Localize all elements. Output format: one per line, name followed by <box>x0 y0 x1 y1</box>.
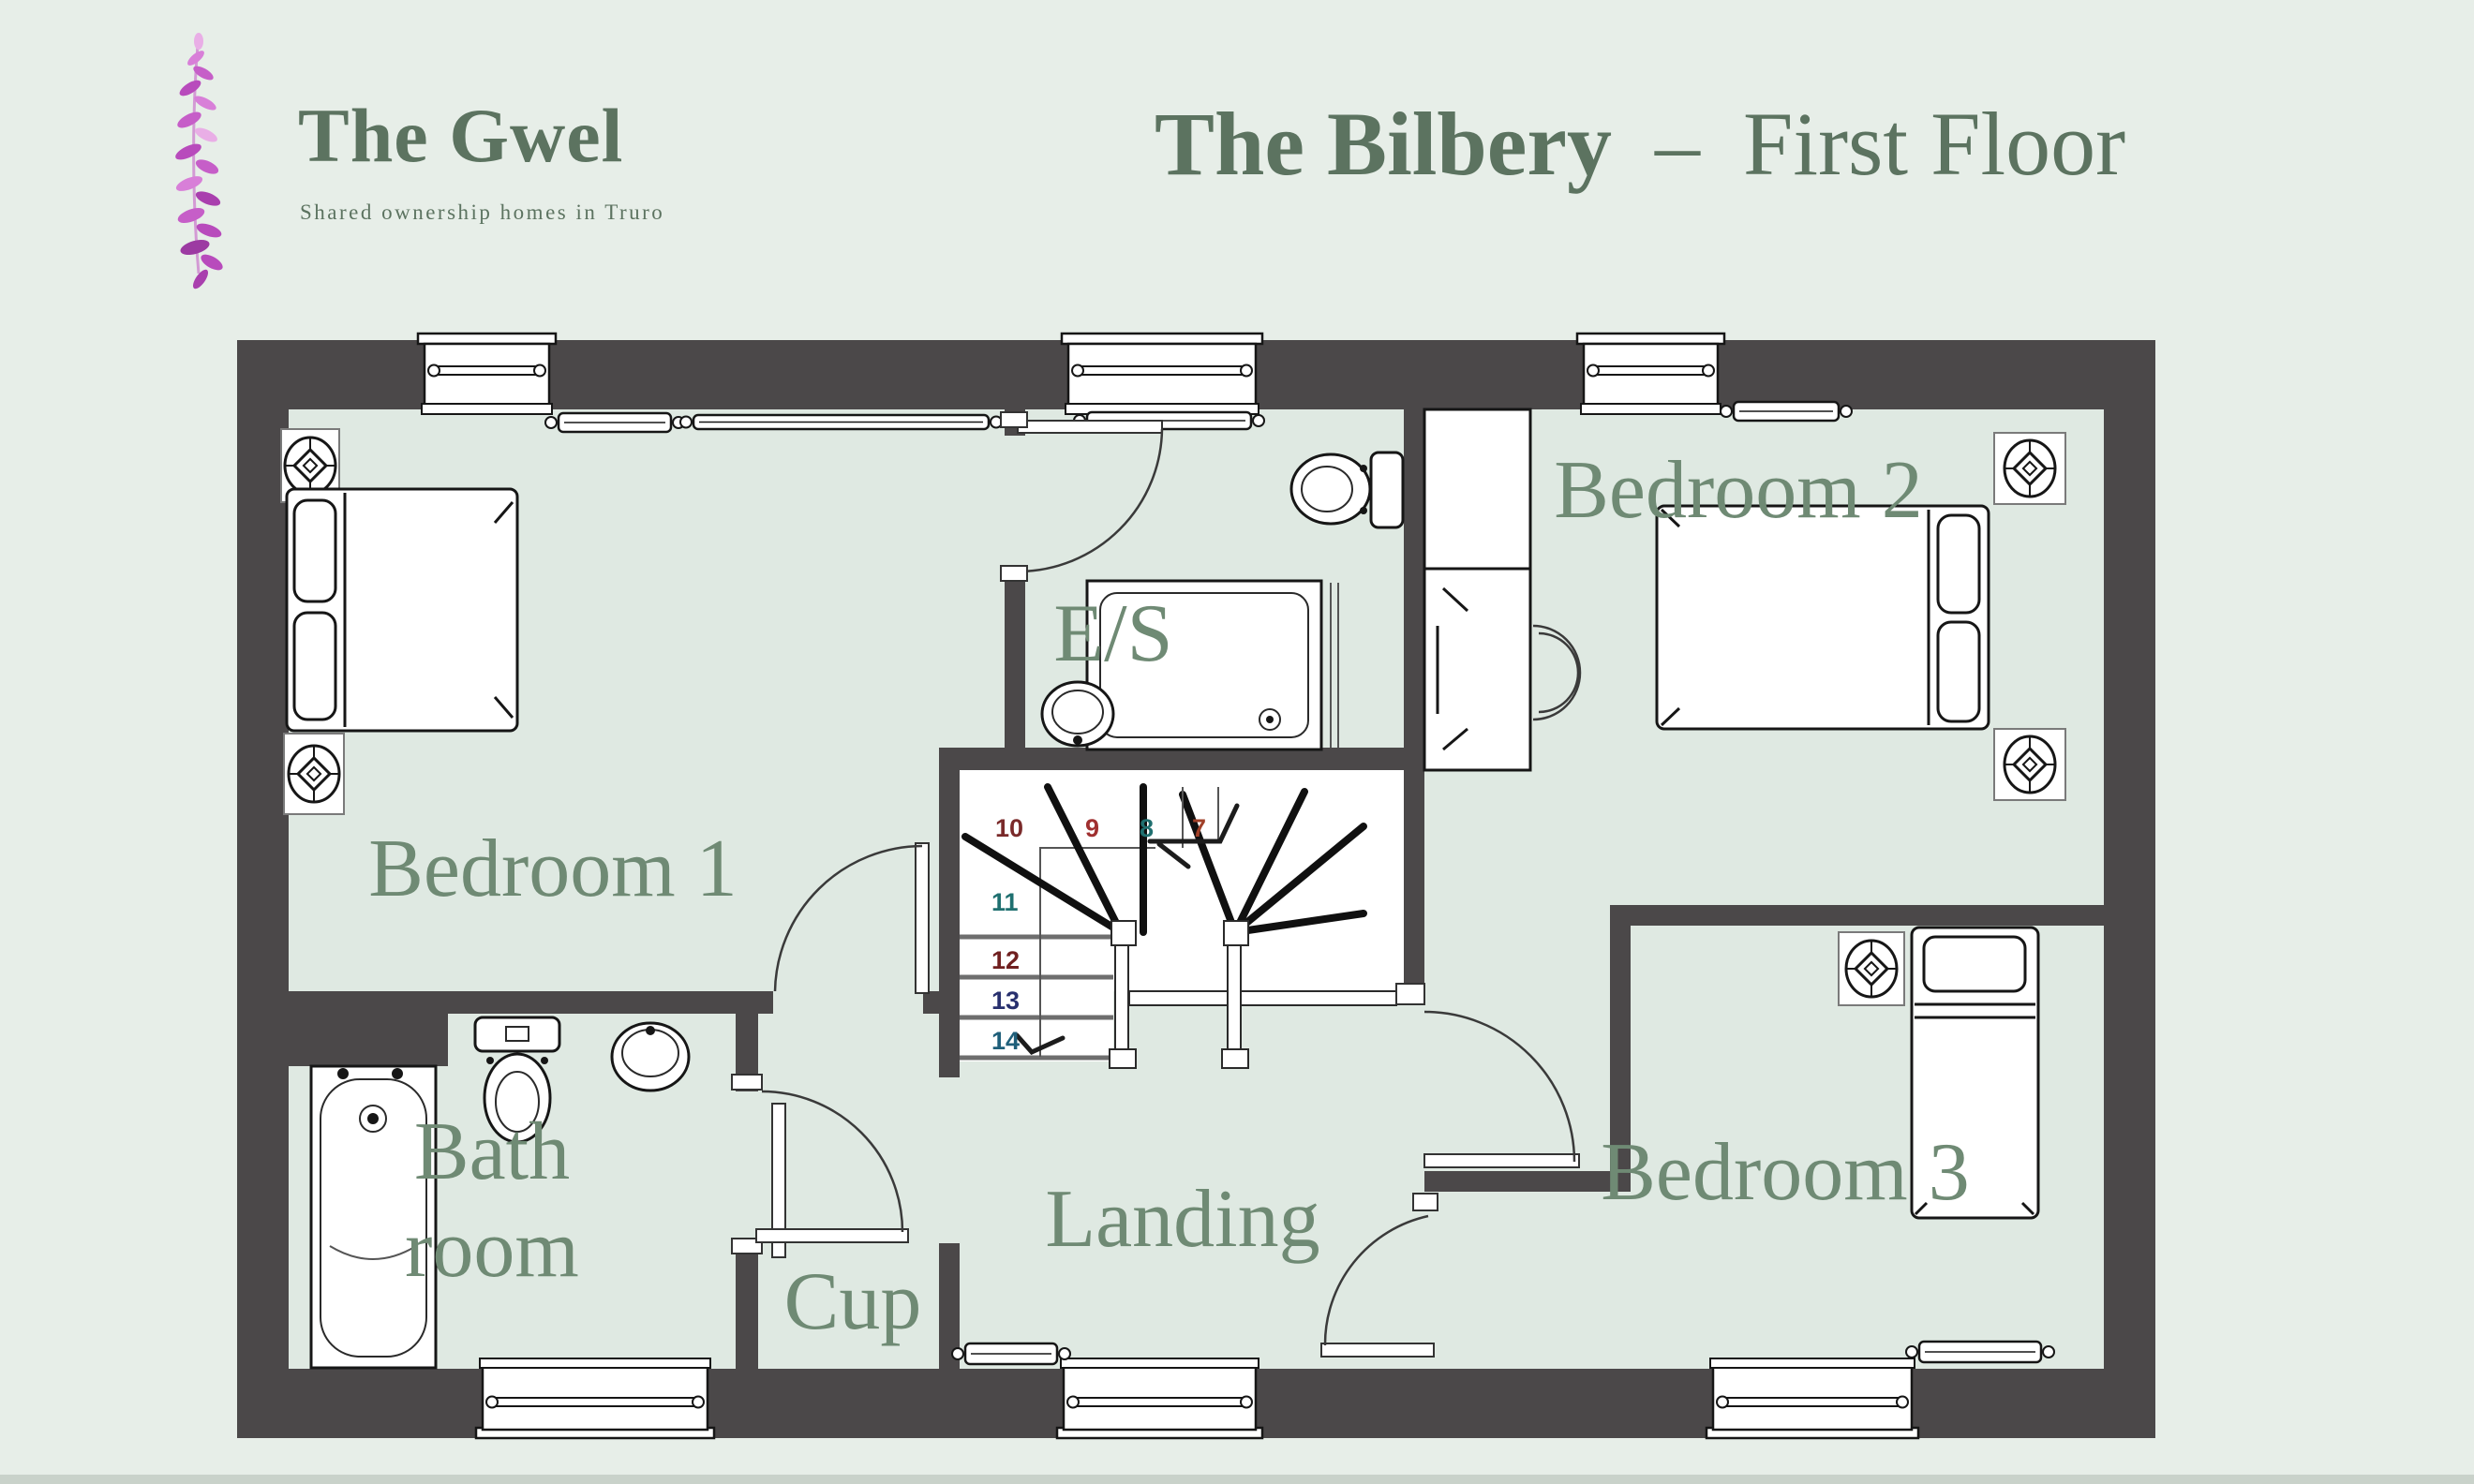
stair-step-10: 10 <box>995 814 1023 842</box>
room-label-bathroom-line2: room <box>405 1204 579 1295</box>
bedroom-1-door <box>916 843 929 993</box>
room-label-cupboard: Cup <box>784 1256 922 1347</box>
window <box>1577 334 1724 414</box>
wardrobe <box>1424 409 1530 569</box>
brand-title: The Gwel <box>298 93 623 178</box>
header: The Gwel Shared ownership homes in Truro… <box>173 33 2125 291</box>
pillow <box>1938 515 1979 613</box>
pillow <box>1938 622 1979 721</box>
stair-step-8: 8 <box>1140 814 1154 842</box>
bedroom-2-door <box>1424 1154 1579 1167</box>
bedroom-1-furniture <box>287 489 517 731</box>
bedside-table <box>1839 932 1904 1005</box>
window <box>1706 1358 1918 1438</box>
pillow <box>294 613 335 720</box>
ensuite-door <box>1018 421 1162 433</box>
bedside-table <box>1994 729 2065 800</box>
pillow <box>294 500 335 601</box>
stair-step-11: 11 <box>991 888 1019 916</box>
page-title-separator: – <box>1654 94 1701 194</box>
stair-step-14: 14 <box>991 1027 1020 1055</box>
lamp-icon <box>289 746 339 802</box>
lamp-icon <box>2005 736 2055 793</box>
window <box>1062 334 1262 414</box>
room-label-landing: Landing <box>1045 1174 1319 1265</box>
page-title: The Bilbery – First Floor <box>1155 94 2125 194</box>
banister-rail <box>1129 991 1396 1005</box>
bedside-table <box>1994 433 2065 504</box>
room-label-ensuite: E/S <box>1053 588 1172 679</box>
stair-step-9: 9 <box>1085 814 1099 842</box>
stair-step-12: 12 <box>991 946 1020 974</box>
toilet-icon <box>1291 453 1403 527</box>
radiator <box>952 1343 1070 1364</box>
basin-icon <box>1042 682 1113 746</box>
window <box>418 334 556 414</box>
pillow <box>1924 937 2025 991</box>
lamp-icon <box>2005 440 2055 497</box>
room-label-bedroom-2: Bedroom 2 <box>1554 445 1923 536</box>
stair-step-13: 13 <box>991 987 1020 1015</box>
stair-step-7: 7 <box>1192 814 1206 842</box>
room-label-bedroom-3: Bedroom 3 <box>1601 1127 1970 1218</box>
lamp-icon <box>1846 941 1897 997</box>
desk <box>1424 569 1530 770</box>
radiator <box>1906 1342 2054 1362</box>
brand-tagline: Shared ownership homes in Truro <box>300 200 664 224</box>
page-title-floor: First Floor <box>1743 94 2125 194</box>
page-bottom-edge <box>0 1475 2474 1484</box>
room-label-bathroom-line1: Bath <box>414 1106 570 1197</box>
radiator <box>545 413 684 432</box>
window <box>476 1358 714 1438</box>
radiator <box>1721 402 1852 421</box>
basin-icon <box>612 1023 689 1091</box>
cupboard-partition <box>756 1229 908 1242</box>
window <box>1057 1358 1262 1438</box>
floorplan: 7 8 9 10 11 12 13 14 <box>237 334 2155 1438</box>
bedside-table <box>284 734 344 814</box>
bedroom-3-door <box>1321 1343 1434 1357</box>
radiator <box>680 415 1002 429</box>
floorplan-page: The Gwel Shared ownership homes in Truro… <box>0 0 2474 1484</box>
room-label-bedroom-1: Bedroom 1 <box>368 824 738 914</box>
lamp-icon <box>285 438 335 494</box>
page-title-name: The Bilbery <box>1155 94 1612 194</box>
lavender-sprig-logo-icon <box>173 33 225 291</box>
